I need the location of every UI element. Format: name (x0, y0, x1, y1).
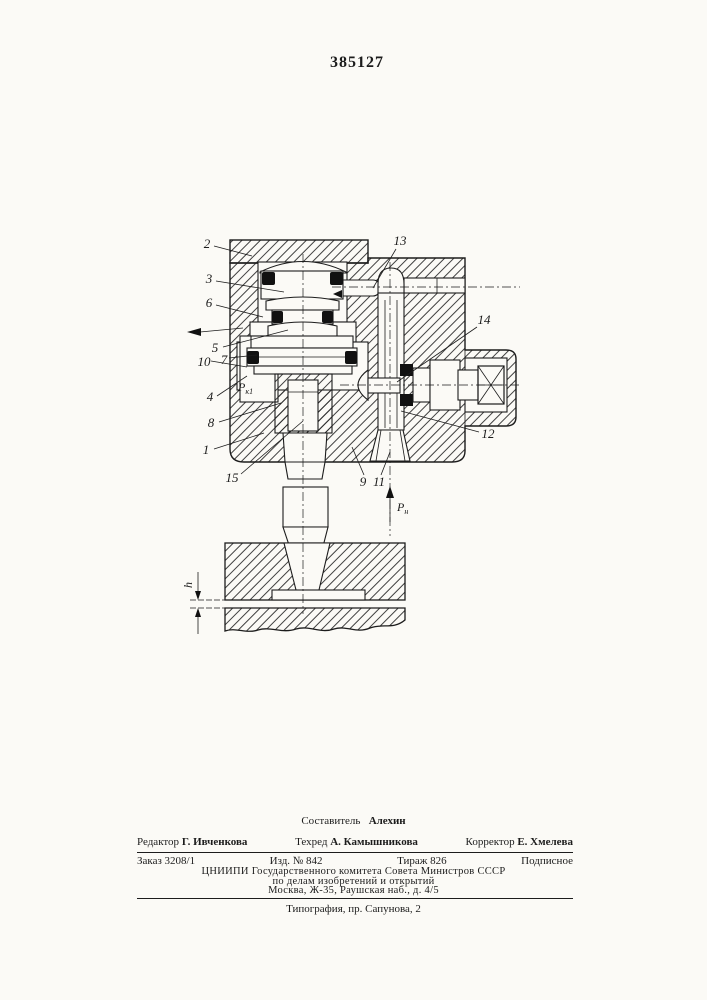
seal-ring (330, 272, 343, 285)
patent-page: 385127 (0, 0, 707, 1000)
seal-ring (262, 272, 275, 285)
editor-label: Редактор (137, 836, 179, 848)
techred-label: Техред (295, 836, 327, 848)
techred-name: А. Камышникова (330, 836, 418, 848)
seal-ring (345, 351, 357, 364)
gap-dimension-label: h (181, 582, 195, 588)
part-label-9: 9 (360, 474, 367, 489)
part-label-11: 11 (373, 474, 385, 489)
part-label-1: 1 (203, 442, 210, 457)
top-cap (230, 240, 368, 263)
base-block (225, 608, 405, 631)
credits-row: Редактор Г. Ивченкова Техред А. Камышник… (137, 836, 573, 848)
valve-seat-seal (400, 364, 413, 376)
part-label-3: 3 (205, 271, 213, 286)
techred-cell: Техред А. Камышникова (295, 836, 418, 848)
patent-figure: 2 3 6 5 10 7 4 8 1 15 13 14 12 9 11 Рк1 … (0, 0, 707, 1000)
part-label-8: 8 (208, 415, 215, 430)
part-label-4: 4 (207, 389, 214, 404)
part-label-7: 7 (221, 352, 228, 367)
valve-seat-seal (400, 394, 413, 406)
part-label-13: 13 (394, 233, 408, 248)
workpiece-block (225, 543, 405, 600)
supply-pressure-label: Рн (396, 500, 408, 516)
compiler-line: Составитель Алехин (0, 815, 707, 827)
part-label-10: 10 (198, 354, 212, 369)
editor-name: Г. Ивченкова (182, 836, 248, 848)
printer-line: Типография, пр. Сапунова, 2 (0, 903, 707, 915)
editor-cell: Редактор Г. Ивченкова (137, 836, 247, 848)
part-label-15: 15 (226, 470, 240, 485)
part-label-6: 6 (206, 295, 213, 310)
rule-top (137, 852, 573, 853)
corrector-cell: Корректор Е. Хмелева (466, 836, 573, 848)
rule-bottom (137, 898, 573, 899)
corrector-label: Корректор (466, 836, 515, 848)
seal-ring (322, 311, 333, 323)
part-label-5: 5 (212, 340, 219, 355)
part-label-14: 14 (478, 312, 492, 327)
supply-pressure-arrow (386, 486, 394, 522)
seal-ring (247, 351, 259, 364)
org-line-3: Москва, Ж-35, Раушская наб., д. 4/5 (0, 885, 707, 896)
measured-sheet (272, 590, 365, 600)
part-label-2: 2 (204, 236, 211, 251)
part-label-12: 12 (482, 426, 496, 441)
seal-ring (272, 311, 283, 323)
compiler-name: Алехин (369, 815, 406, 827)
compiler-label: Составитель (301, 815, 360, 827)
corrector-name: Е. Хмелева (517, 836, 573, 848)
